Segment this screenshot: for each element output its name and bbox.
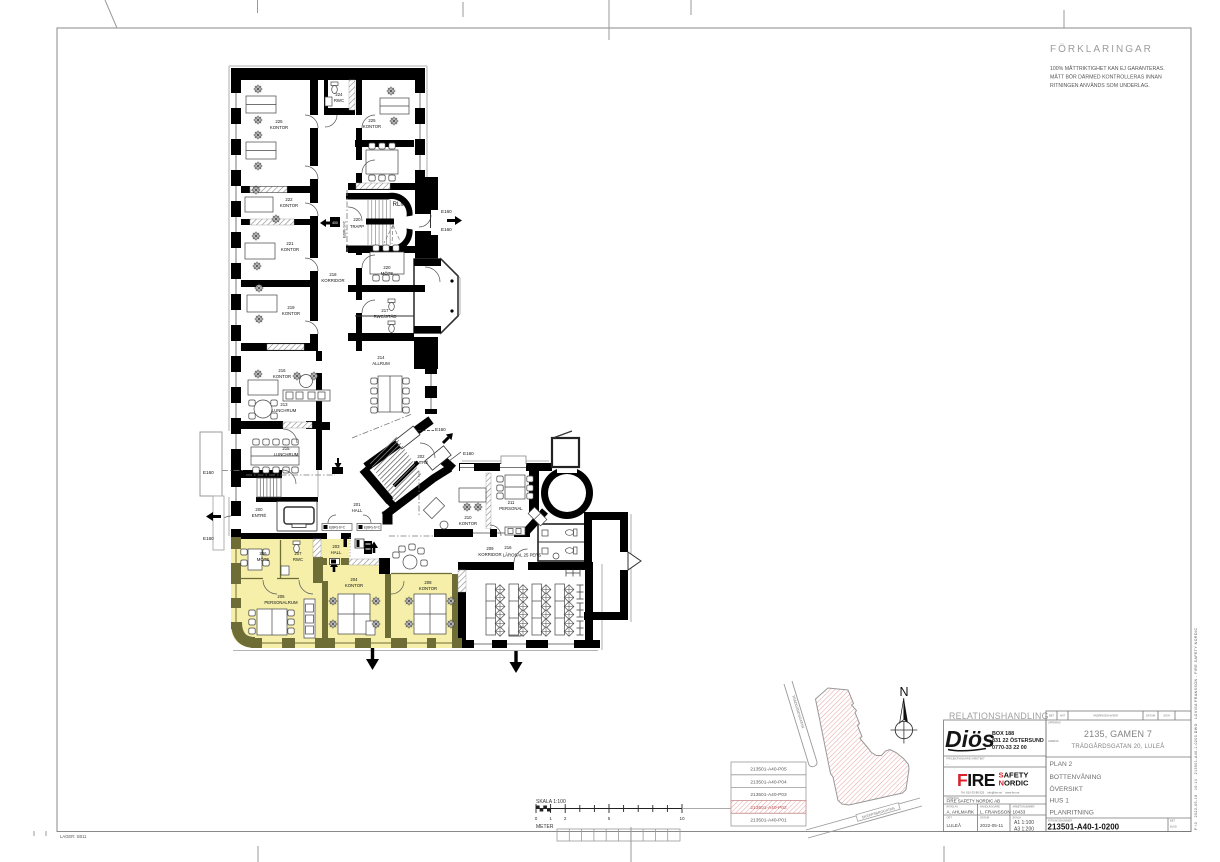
svg-text:ANT: ANT [1060, 714, 1066, 718]
svg-text:10: 10 [679, 816, 685, 821]
svg-text:E160: E160 [203, 470, 214, 475]
svg-text:KORRIDOR: KORRIDOR [478, 552, 501, 557]
svg-text:E(BR)-S=C: E(BR)-S=C [364, 526, 381, 530]
svg-text:MÅTT BÖR DÄRMED KONTROLLERAS I: MÅTT BÖR DÄRMED KONTROLLERAS INNAN [1050, 74, 1162, 81]
svg-text:ÖVERSIKT: ÖVERSIKT [1050, 785, 1083, 793]
svg-text:RITNINGEN ANVÄNDS SOM UNDERLAG: RITNINGEN ANVÄNDS SOM UNDERLAG. [1050, 82, 1150, 89]
svg-text:TRAPP: TRAPP [350, 224, 364, 229]
svg-text:KONTOR: KONTOR [273, 374, 291, 379]
svg-text:0: 0 [535, 816, 538, 821]
svg-text:205: 205 [277, 594, 285, 599]
svg-text:5: 5 [608, 816, 611, 821]
svg-text:HUS 1: HUS 1 [1050, 798, 1070, 805]
svg-text:NORDIC: NORDIC [999, 779, 1029, 788]
svg-text:217: 217 [381, 308, 389, 313]
svg-text:FIRE SAFETY NORDIC AB: FIRE SAFETY NORDIC AB [947, 799, 1001, 804]
svg-text:10433: 10433 [1013, 810, 1026, 815]
svg-text:LULEÅ: LULEÅ [947, 822, 962, 828]
svg-text:A3 1:200: A3 1:200 [1014, 827, 1034, 833]
svg-text:KONTOR: KONTOR [363, 124, 381, 129]
svg-text:MÖTE: MÖTE [257, 557, 270, 562]
svg-text:213501-A40-P02: 213501-A40-P02 [750, 805, 787, 811]
svg-text:E160: E160 [441, 209, 452, 214]
svg-text:E160: E160 [203, 536, 214, 541]
svg-text:201: 201 [353, 502, 361, 507]
svg-text:213501-A40-P03: 213501-A40-P03 [750, 792, 787, 798]
svg-text:215: 215 [282, 446, 290, 451]
svg-text:BOTTENVÅNING: BOTTENVÅNING [1050, 772, 1102, 781]
svg-text:ENTRÉ: ENTRÉ [252, 513, 267, 518]
svg-text:KONTOR: KONTOR [281, 247, 299, 252]
svg-text:HALL: HALL [331, 550, 342, 555]
svg-text:207: 207 [294, 551, 302, 556]
svg-text:ORT: ORT [947, 816, 953, 820]
svg-text:PERSONAL: PERSONAL [499, 506, 523, 511]
svg-text:210: 210 [464, 515, 472, 520]
svg-text:E(BR)-S=C: E(BR)-S=C [329, 526, 346, 530]
svg-text:KONTOR: KONTOR [419, 586, 437, 591]
svg-text:RITAD AV: RITAD AV [947, 805, 959, 809]
svg-text:400: 400 [332, 221, 338, 225]
svg-text:100% MÅTTRIKTIGHET KAN EJ GARA: 100% MÅTTRIKTIGHET KAN EJ GARANTERAS. [1050, 65, 1165, 72]
svg-text:ARBETSNUMMER: ARBETSNUMMER [1013, 805, 1035, 809]
svg-text:LAGER: SB11: LAGER: SB11 [60, 834, 87, 839]
svg-text:L. FRANSSON: L. FRANSSON [980, 810, 1011, 815]
svg-text:KONTOR: KONTOR [282, 311, 300, 316]
svg-text:ALLRUM: ALLRUM [372, 361, 390, 366]
svg-text:0770-33 22 00: 0770-33 22 00 [992, 745, 1027, 751]
svg-text:ÄNDRINGEN AVSER: ÄNDRINGEN AVSER [1093, 714, 1118, 718]
svg-text:225: 225 [368, 118, 376, 123]
svg-text:UPPDRAG: UPPDRAG [1048, 721, 1061, 725]
svg-text:KONTOR: KONTOR [270, 125, 288, 130]
svg-text:RWC: RWC [334, 98, 344, 103]
svg-text:200: 200 [255, 507, 263, 512]
svg-text:220: 220 [353, 217, 361, 222]
svg-text:METER: METER [536, 824, 554, 830]
svg-text:216: 216 [504, 545, 512, 550]
svg-text:RELATIONSHANDLING: RELATIONSHANDLING [949, 711, 1049, 721]
svg-text:202: 202 [417, 454, 425, 459]
svg-text:213501-A40-P04: 213501-A40-P04 [750, 779, 787, 785]
svg-text:PERSONALRUM: PERSONALRUM [264, 600, 298, 605]
svg-text:2022-05-11: 2022-05-11 [980, 823, 1004, 828]
svg-text:RWC/STÄD: RWC/STÄD [374, 314, 397, 319]
svg-text:SKALA: SKALA [1013, 816, 1022, 820]
svg-text:LUNCHRUM: LUNCHRUM [272, 408, 297, 413]
svg-text:PLAN 2: PLAN 2 [1050, 761, 1073, 768]
svg-text:204: 204 [350, 577, 358, 582]
svg-text:DATUM: DATUM [1146, 714, 1155, 718]
svg-text:FÖRKLARINGAR: FÖRKLARINGAR [1050, 43, 1153, 55]
svg-text:831 22 ÖSTERSUND: 831 22 ÖSTERSUND [992, 737, 1044, 744]
svg-text:224: 224 [335, 92, 343, 97]
svg-text:214: 214 [377, 355, 385, 360]
svg-text:HALL: HALL [352, 508, 363, 513]
svg-text:206: 206 [259, 551, 267, 556]
svg-text:BET: BET [1170, 819, 1175, 823]
svg-text:213501-A40-1-0200: 213501-A40-1-0200 [1048, 823, 1120, 832]
svg-text:209: 209 [486, 546, 494, 551]
svg-text:PROJEKTANSVARIG ARKITEKT: PROJEKTANSVARIG ARKITEKT [947, 757, 986, 761]
svg-text:DATUM: DATUM [980, 816, 989, 820]
svg-text:216: 216 [278, 368, 286, 373]
svg-text:1: 1 [549, 816, 552, 821]
svg-text:KONTOR: KONTOR [459, 521, 477, 526]
svg-text:213501-A40-P05: 213501-A40-P05 [750, 767, 787, 773]
svg-text:219: 219 [287, 305, 295, 310]
svg-text:FIRE: FIRE [957, 770, 995, 790]
svg-text:203: 203 [332, 544, 340, 549]
svg-text:ENTRÉ: ENTRÉ [414, 460, 429, 465]
svg-text:A1 1:100: A1 1:100 [1014, 820, 1034, 826]
svg-text:E160: E160 [435, 427, 446, 432]
svg-text:221: 221 [286, 241, 294, 246]
svg-text:SIGN: SIGN [1163, 714, 1169, 718]
svg-text:E160: E160 [463, 451, 474, 456]
svg-text:MÖTE: MÖTE [381, 271, 394, 276]
svg-text:LUNCHRUM: LUNCHRUM [274, 452, 299, 457]
svg-text:KONTOR: KONTOR [280, 203, 298, 208]
svg-text:PLANRITNING: PLANRITNING [1050, 810, 1094, 817]
svg-text:208: 208 [424, 580, 432, 585]
svg-text:2: 2 [564, 816, 567, 821]
svg-text:RWC: RWC [293, 557, 303, 562]
svg-text:E(BR)-S=C: E(BR)-S=C [343, 220, 347, 238]
svg-text:211: 211 [508, 500, 515, 505]
svg-text:220: 220 [383, 265, 391, 270]
svg-text:Diös: Diös [945, 726, 995, 752]
svg-text:BET: BET [1049, 714, 1054, 718]
svg-text:KORRIDOR: KORRIDOR [321, 278, 344, 283]
svg-text:N: N [900, 685, 909, 699]
svg-text:A. AHLMARK: A. AHLMARK [947, 810, 976, 815]
svg-text:KONTOR: KONTOR [345, 583, 363, 588]
svg-text:P:\0 2022-05-18 16:14 21: P:\0 2022-05-18 16:14 213501-A40-1-0200.… [1194, 628, 1198, 830]
svg-text:222: 222 [285, 197, 293, 202]
svg-text:Tel: 010-33 88 525 info@fsn: Tel: 010-33 88 525 info@fsn.se www.fsn.s… [961, 791, 1020, 795]
svg-text:E160: E160 [441, 227, 452, 232]
svg-text:BLAD: BLAD [1170, 825, 1177, 829]
svg-text:213: 213 [280, 402, 288, 407]
svg-text:213501-A40-P01: 213501-A40-P01 [750, 818, 787, 824]
svg-text:2135, GAMEN 7: 2135, GAMEN 7 [1084, 729, 1152, 739]
svg-text:ADRESS: ADRESS [1048, 739, 1059, 743]
svg-text:218: 218 [329, 272, 337, 277]
svg-text:HANDLÄGGARE: HANDLÄGGARE [980, 805, 1000, 809]
svg-text:RLM: RLM [393, 202, 406, 208]
svg-text:BOX 188: BOX 188 [992, 731, 1014, 737]
svg-text:TRÄDGÅRDSGATAN 20, LULEÅ: TRÄDGÅRDSGATAN 20, LULEÅ [1072, 743, 1165, 750]
svg-text:225: 225 [275, 119, 283, 124]
svg-text:LÄROSAL 25 PERS: LÄROSAL 25 PERS [503, 553, 542, 558]
